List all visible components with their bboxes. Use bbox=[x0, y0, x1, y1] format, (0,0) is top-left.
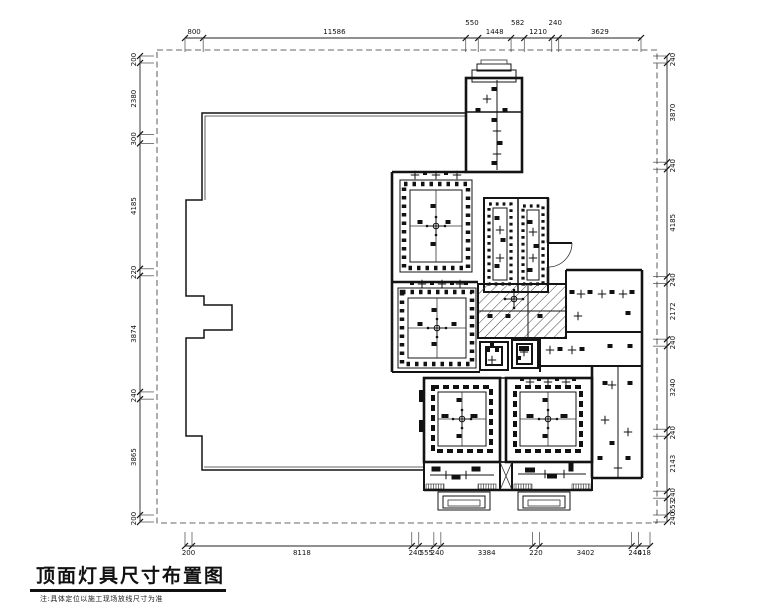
title-underline bbox=[30, 589, 226, 592]
lamp-cross-icon bbox=[442, 471, 450, 479]
title-block: 顶面灯具尺寸布置图 注:具体定位以施工现场放线尺寸为准 bbox=[36, 564, 336, 604]
lamp-cross-icon bbox=[496, 254, 504, 262]
lamp-cross-icon bbox=[577, 290, 585, 298]
lamp-cross-icon bbox=[601, 416, 609, 424]
downlight-icon bbox=[457, 398, 462, 402]
dimension-label: 300 bbox=[130, 132, 138, 145]
dimension-label: 200 bbox=[130, 512, 138, 525]
cad-canvas: 8001158655014485821210240362920081182405… bbox=[0, 0, 760, 613]
lamp-cross-icon bbox=[483, 95, 491, 103]
downlight-icon bbox=[630, 290, 635, 294]
downlight-icon bbox=[432, 308, 437, 312]
lamp-cross-icon bbox=[529, 228, 537, 236]
lamp-cross-icon bbox=[496, 226, 504, 234]
shaft-x-box bbox=[500, 462, 512, 490]
downlight-icon bbox=[534, 244, 539, 248]
lamp-cross-icon bbox=[624, 428, 632, 436]
dimension-label: 3402 bbox=[577, 549, 595, 557]
downlight-icon bbox=[610, 441, 615, 445]
downlight-icon bbox=[501, 238, 506, 242]
dimension-label: 240 bbox=[549, 19, 562, 27]
chandelier-icon bbox=[538, 409, 559, 430]
downlight-icon bbox=[538, 314, 543, 318]
downlight-icon bbox=[520, 377, 524, 381]
downlight-icon bbox=[430, 281, 434, 285]
downlight-icon bbox=[498, 141, 503, 145]
lamp-cross-icon bbox=[493, 127, 501, 135]
dimension-label: 1448 bbox=[486, 28, 504, 36]
downlight-icon bbox=[626, 311, 631, 315]
dimension-label: 2172 bbox=[669, 302, 677, 320]
dimension-label: 418 bbox=[638, 549, 651, 557]
downlight-icon bbox=[503, 108, 508, 112]
downlight-icon bbox=[472, 467, 481, 472]
dimension-label: 2380 bbox=[130, 90, 138, 108]
downlight-icon bbox=[450, 281, 454, 285]
bathrooms bbox=[480, 340, 538, 370]
bay-windows bbox=[438, 492, 570, 510]
downlight-icon bbox=[528, 220, 533, 224]
balconies bbox=[424, 462, 592, 490]
downlight-icon bbox=[432, 342, 437, 346]
dimension-label: 200 bbox=[130, 53, 138, 66]
downlight-icon bbox=[431, 204, 436, 208]
dimension-label: 220 bbox=[529, 549, 542, 557]
dimension-label: 3874 bbox=[130, 324, 138, 342]
lamp-cross-icon bbox=[546, 346, 554, 354]
dimension-strip-bottom: 200811824055524033842203402240418 bbox=[182, 532, 653, 557]
downlight-icon bbox=[588, 290, 593, 294]
dimension-label: 3870 bbox=[669, 104, 677, 122]
downlight-icon bbox=[537, 377, 541, 381]
downlight-icon bbox=[495, 216, 500, 220]
downlight-icon bbox=[446, 220, 451, 224]
dimension-strip-top: 80011586550144858212102403629 bbox=[182, 19, 644, 52]
dimension-label: 582 bbox=[511, 19, 524, 27]
downlight-icon bbox=[432, 467, 441, 472]
dimension-label: 653 bbox=[669, 500, 677, 513]
dimension-label: 4185 bbox=[130, 197, 138, 215]
downlight-icon bbox=[442, 414, 449, 418]
lamp-cross-icon bbox=[619, 290, 627, 298]
dimension-label: 240 bbox=[669, 426, 677, 439]
downlight-icon bbox=[555, 377, 559, 381]
lamp-cross-icon bbox=[598, 290, 606, 298]
lamp-cross-icon bbox=[574, 312, 582, 320]
dimension-label: 220 bbox=[130, 266, 138, 279]
lamp-cross-icon bbox=[488, 356, 496, 364]
downlight-icon bbox=[419, 390, 423, 402]
downlight-icon bbox=[457, 434, 462, 438]
downlight-icon bbox=[492, 161, 497, 165]
downlight-icon bbox=[471, 414, 478, 418]
lamp-cross-icon bbox=[608, 381, 616, 389]
downlight-icon bbox=[543, 434, 548, 438]
downlight-icon bbox=[603, 381, 608, 385]
floor-plan-drawing: 8001158655014485821210240362920081182405… bbox=[0, 0, 760, 613]
drawing-note: 注:具体定位以施工现场放线尺寸为准 bbox=[40, 594, 336, 604]
dimension-label: 240 bbox=[669, 53, 677, 66]
dining-room bbox=[566, 270, 642, 478]
downlight-icon bbox=[528, 268, 533, 272]
downlight-icon bbox=[506, 314, 511, 318]
downlight-icon bbox=[452, 322, 457, 326]
dimension-label: 3384 bbox=[478, 549, 496, 557]
downlight-icon bbox=[570, 290, 575, 294]
chandelier-icon bbox=[426, 216, 447, 237]
downlight-icon bbox=[490, 342, 494, 346]
downlight-icon bbox=[572, 377, 576, 381]
dimension-label: 550 bbox=[465, 19, 478, 27]
downlight-icon bbox=[561, 414, 568, 418]
downlight-icon bbox=[626, 456, 631, 460]
lamp-cross-icon bbox=[560, 470, 568, 478]
downlight-icon bbox=[476, 108, 481, 112]
boundary-dashed-rect bbox=[157, 50, 657, 523]
lamp-cross-icon bbox=[568, 346, 576, 354]
dimension-label: 4185 bbox=[669, 214, 677, 232]
downlight-icon bbox=[423, 171, 427, 175]
dimension-label: 240 bbox=[669, 273, 677, 286]
dimension-label: 3865 bbox=[130, 448, 138, 466]
downlight-icon bbox=[431, 242, 436, 246]
downlight-icon bbox=[608, 344, 613, 348]
dimension-label: 3629 bbox=[591, 28, 609, 36]
downlight-icon bbox=[525, 468, 535, 473]
dimension-label: 800 bbox=[187, 28, 200, 36]
downlight-icon bbox=[444, 171, 448, 175]
downlight-icon bbox=[558, 347, 563, 351]
dimension-label: 8118 bbox=[293, 549, 311, 557]
downlight-icon bbox=[418, 220, 423, 224]
entry-room bbox=[466, 60, 522, 172]
dimension-label: 200 bbox=[182, 549, 195, 557]
downlight-icon bbox=[543, 398, 548, 402]
dimension-label: 1210 bbox=[529, 28, 547, 36]
downlight-icon bbox=[569, 463, 574, 472]
dimension-strip-left: 2002380300418522038742403865200 bbox=[130, 53, 154, 525]
downlight-icon bbox=[628, 344, 633, 348]
downlight-icon bbox=[488, 314, 493, 318]
downlight-icon bbox=[464, 281, 468, 285]
downlight-icon bbox=[486, 348, 490, 352]
downlight-icon bbox=[610, 290, 615, 294]
dimension-label: 240 bbox=[669, 488, 677, 501]
downlight-icon bbox=[410, 281, 414, 285]
lamp-cross-icon bbox=[529, 254, 537, 262]
right-wing bbox=[592, 366, 642, 478]
lamp-cross-icon bbox=[614, 464, 622, 472]
chandelier-icon bbox=[452, 409, 473, 430]
lowerleft-room-grid bbox=[392, 282, 480, 372]
downlight-icon bbox=[495, 264, 500, 268]
corridor-hatched-ceiling bbox=[478, 284, 566, 338]
dimension-label: 3240 bbox=[669, 379, 677, 397]
chandelier-icon bbox=[427, 318, 448, 339]
downlight-icon bbox=[628, 381, 633, 385]
dimension-label: 2143 bbox=[669, 455, 677, 473]
dimension-label: 240 bbox=[669, 159, 677, 172]
downlight-icon bbox=[452, 475, 461, 480]
dimension-label: 240 bbox=[669, 336, 677, 349]
drawing-title: 顶面灯具尺寸布置图 bbox=[36, 564, 336, 588]
downlight-icon bbox=[495, 348, 499, 352]
dimension-label: 11586 bbox=[323, 28, 346, 36]
lamp-cross-icon bbox=[493, 150, 501, 158]
downlight-icon bbox=[418, 322, 423, 326]
downlight-icon bbox=[527, 414, 534, 418]
bedroom-right bbox=[500, 378, 592, 462]
downlight-icon bbox=[598, 456, 603, 460]
downlight-icon bbox=[492, 118, 497, 122]
lamp-cross-icon bbox=[462, 471, 470, 479]
downlight-icon bbox=[517, 356, 521, 360]
downlight-icon bbox=[419, 420, 423, 432]
dimension-label: 240 bbox=[130, 389, 138, 402]
downlight-icon bbox=[580, 347, 585, 351]
dimension-label: 240 bbox=[669, 512, 677, 525]
downlight-icon bbox=[492, 87, 497, 91]
dimension-label: 240 bbox=[431, 549, 444, 557]
